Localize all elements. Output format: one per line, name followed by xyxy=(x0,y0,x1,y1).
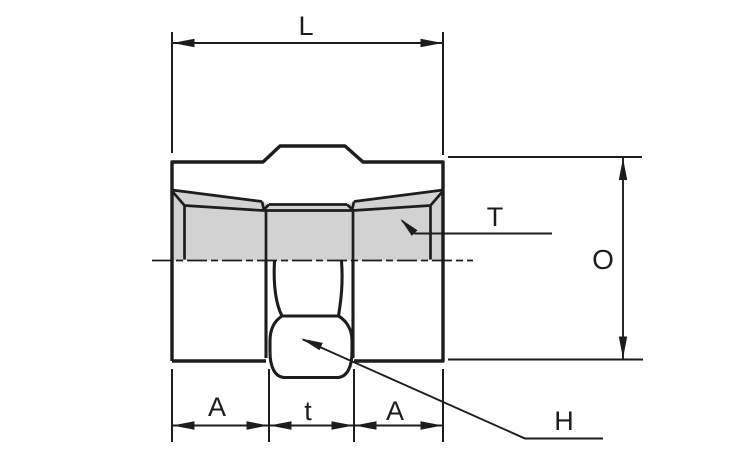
arrowhead-down-icon xyxy=(619,337,627,359)
label-O: O xyxy=(592,244,614,275)
dimension-O: O xyxy=(448,157,643,360)
arrowhead-icon xyxy=(332,421,354,429)
arrowhead-left-icon xyxy=(173,39,195,47)
dimension-L: L xyxy=(172,11,443,155)
label-A-left: A xyxy=(208,392,226,422)
leader-arrowhead-icon xyxy=(301,339,323,351)
technical-drawing-canvas: L O A t A T H xyxy=(0,0,750,450)
arrowhead-right-icon xyxy=(421,39,443,47)
label-H: H xyxy=(554,406,574,436)
label-L: L xyxy=(298,11,313,41)
dimension-AtA: A t A xyxy=(172,369,443,442)
label-t: t xyxy=(304,396,312,426)
arrowhead-icon xyxy=(247,421,269,429)
arrowhead-icon xyxy=(355,421,377,429)
label-A-right: A xyxy=(386,396,404,426)
label-T: T xyxy=(487,202,504,232)
coupling-drawing: L O A t A T H xyxy=(0,0,750,450)
arrowhead-up-icon xyxy=(619,158,627,180)
arrowhead-icon xyxy=(270,421,292,429)
thread-section-fill xyxy=(172,190,443,261)
arrowhead-icon xyxy=(173,421,195,429)
arrowhead-icon xyxy=(421,421,443,429)
leader-H: H xyxy=(301,339,603,439)
hex-face-outline xyxy=(266,261,353,378)
